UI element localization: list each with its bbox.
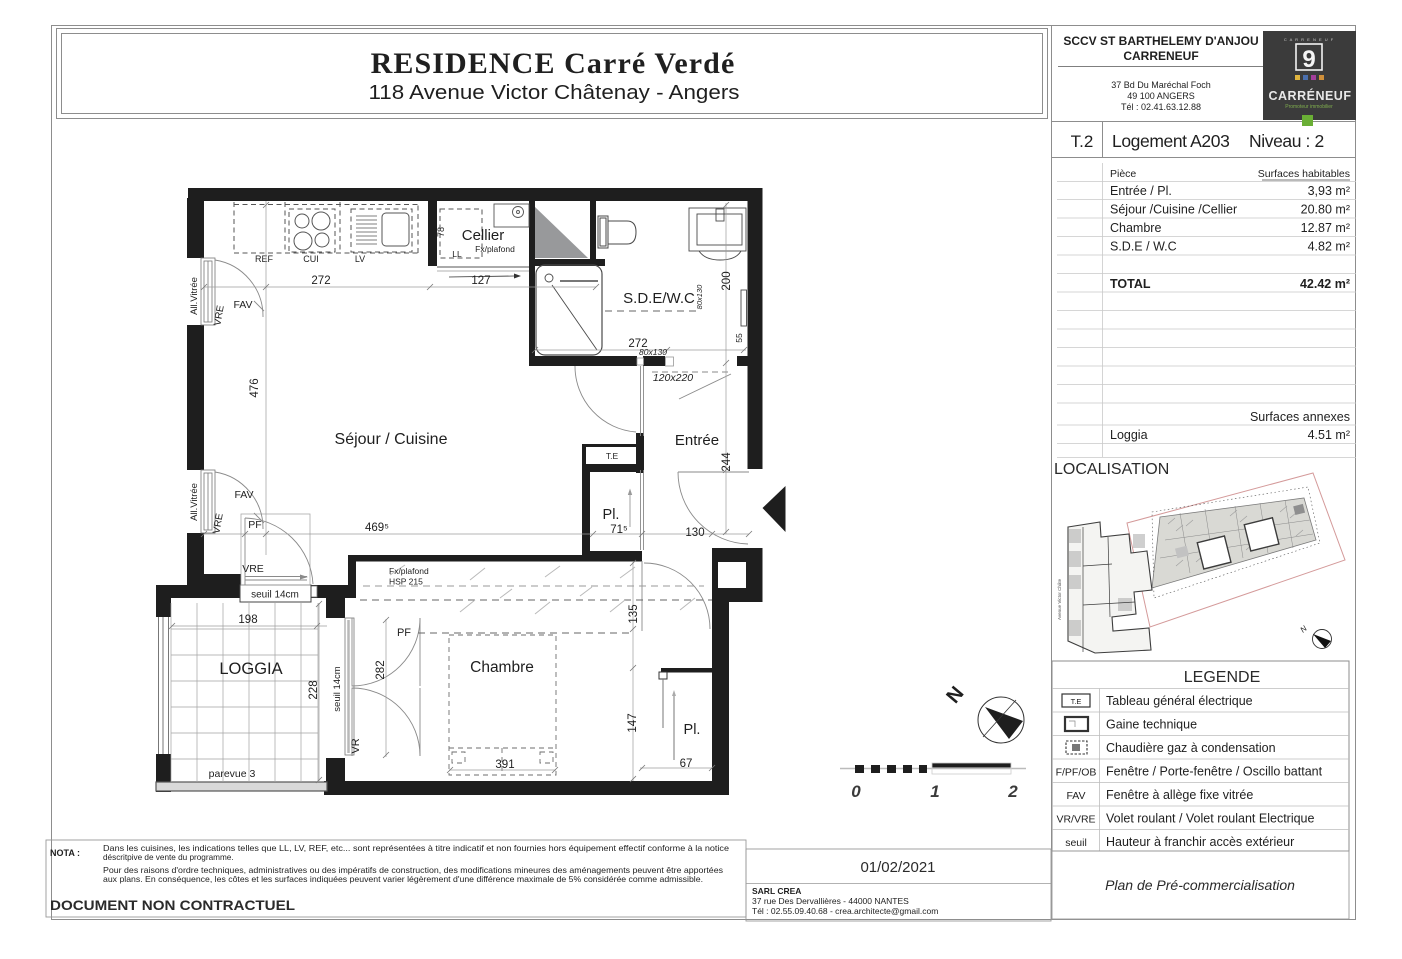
svg-text:Logement A203: Logement A203 (1112, 131, 1229, 151)
svg-text:Fx/plafond: Fx/plafond (475, 244, 515, 254)
svg-text:Chaudière gaz à condensation: Chaudière gaz à condensation (1106, 741, 1276, 755)
svg-text:F/PF/OB: F/PF/OB (1056, 767, 1097, 779)
svg-text:1: 1 (930, 782, 939, 801)
svg-text:seuil: seuil (1065, 837, 1087, 849)
svg-text:LOCALISATION: LOCALISATION (1054, 461, 1169, 478)
svg-text:78: 78 (436, 227, 446, 237)
svg-text:REF: REF (255, 254, 274, 264)
svg-text:SARL CREA: SARL CREA (752, 886, 801, 896)
svg-text:Gaine technique: Gaine technique (1106, 718, 1197, 732)
svg-text:Pièce: Pièce (1110, 168, 1136, 180)
svg-text:aux plans. En conséquence, les: aux plans. En conséquence, les côtes et … (103, 875, 703, 884)
svg-text:seuil 14cm: seuil 14cm (332, 666, 343, 711)
svg-text:VRE: VRE (242, 563, 264, 575)
svg-text:0: 0 (851, 782, 861, 801)
svg-text:49 100 ANGERS: 49 100 ANGERS (1127, 91, 1195, 101)
svg-text:S.D.E/W.C: S.D.E/W.C (623, 290, 695, 307)
svg-text:01/02/2021: 01/02/2021 (860, 859, 935, 876)
svg-text:469⁵: 469⁵ (365, 522, 389, 534)
svg-text:Entrée: Entrée (675, 432, 719, 449)
svg-text:Niveau : 2: Niveau : 2 (1249, 131, 1324, 151)
svg-text:HSP 215: HSP 215 (389, 577, 423, 587)
svg-text:127: 127 (471, 275, 490, 287)
svg-text:Pl.: Pl. (603, 507, 620, 523)
svg-text:244: 244 (721, 452, 733, 472)
svg-text:T.E: T.E (606, 451, 619, 461)
svg-text:RESIDENCE Carré Verdé: RESIDENCE Carré Verdé (371, 47, 736, 80)
svg-text:272: 272 (311, 275, 330, 287)
svg-text:476: 476 (249, 378, 261, 397)
svg-text:parevue 3: parevue 3 (209, 768, 256, 780)
svg-text:DOCUMENT NON CONTRACTUEL: DOCUMENT NON CONTRACTUEL (50, 897, 295, 913)
svg-text:118 Avenue Victor Châtenay - A: 118 Avenue Victor Châtenay - Angers (369, 82, 740, 104)
svg-text:80x130: 80x130 (695, 284, 704, 309)
svg-text:CARRENEUF: CARRENEUF (1123, 49, 1198, 63)
svg-text:Pl.: Pl. (684, 722, 701, 738)
svg-text:LEGENDE: LEGENDE (1184, 669, 1260, 686)
svg-text:LV: LV (355, 254, 365, 264)
svg-text:71⁵: 71⁵ (610, 524, 628, 536)
svg-text:SCCV ST BARTHELEMY D'ANJOU: SCCV ST BARTHELEMY D'ANJOU (1063, 34, 1258, 48)
svg-text:C A R R E N E U F: C A R R E N E U F (1284, 37, 1334, 42)
svg-text:Chambre: Chambre (470, 659, 534, 676)
svg-text:391: 391 (495, 759, 514, 771)
svg-text:282: 282 (375, 660, 387, 679)
svg-text:Fenêtre / Porte-fenêtre / Osci: Fenêtre / Porte-fenêtre / Oscillo battan… (1106, 765, 1323, 779)
svg-text:198: 198 (238, 614, 257, 626)
svg-text:Tél : 02.55.09.40.68 - crea.ar: Tél : 02.55.09.40.68 - crea.architecte@g… (752, 906, 938, 916)
svg-text:Tél : 02.41.63.12.88: Tél : 02.41.63.12.88 (1121, 102, 1201, 112)
svg-text:Surfaces annexes: Surfaces annexes (1250, 410, 1350, 424)
svg-text:55: 55 (734, 333, 744, 343)
svg-text:Dans les cuisines, les indicat: Dans les cuisines, les indications telle… (103, 844, 729, 853)
svg-text:130: 130 (685, 527, 704, 539)
svg-text:Pour des raisons d'ordre techn: Pour des raisons d'ordre techniques, adm… (103, 866, 723, 875)
svg-text:120x220: 120x220 (653, 372, 693, 384)
svg-text:Tableau général électrique: Tableau général électrique (1106, 694, 1253, 708)
svg-text:PF: PF (248, 519, 261, 531)
svg-text:Séjour /Cuisine /Cellier: Séjour /Cuisine /Cellier (1110, 203, 1237, 217)
svg-text:All.Vitrée: All.Vitrée (189, 483, 200, 521)
svg-text:Hauteur à franchir accès extér: Hauteur à franchir accès extérieur (1106, 835, 1294, 849)
svg-text:T.E: T.E (1071, 697, 1082, 706)
svg-text:Cellier: Cellier (462, 227, 505, 244)
svg-text:LL: LL (452, 249, 462, 259)
svg-text:80x130: 80x130 (639, 347, 667, 357)
svg-text:42.42 m²: 42.42 m² (1300, 277, 1350, 291)
svg-text:Fx/plafond: Fx/plafond (389, 566, 429, 576)
svg-text:Séjour / Cuisine: Séjour / Cuisine (335, 431, 448, 448)
svg-text:Volet roulant / Volet roulant: Volet roulant / Volet roulant Electrique (1106, 812, 1315, 826)
svg-text:Entrée / Pl.: Entrée / Pl. (1110, 184, 1172, 198)
svg-text:Fenêtre à allège fixe vitrée: Fenêtre à allège fixe vitrée (1106, 788, 1253, 802)
svg-text:CUI: CUI (303, 254, 319, 264)
svg-text:Avenue Victor Châte: Avenue Victor Châte (1057, 578, 1062, 620)
svg-text:T.2: T.2 (1071, 132, 1094, 151)
svg-text:67: 67 (680, 758, 693, 770)
svg-text:3,93 m²: 3,93 m² (1308, 184, 1350, 198)
svg-text:seuil 14cm: seuil 14cm (251, 590, 299, 601)
svg-text:Loggia: Loggia (1110, 428, 1148, 442)
svg-text:37 rue Des Dervallières - 4400: 37 rue Des Dervallières - 44000 NANTES (752, 896, 909, 906)
svg-text:NOTA :: NOTA : (50, 848, 80, 858)
svg-text:LOGGIA: LOGGIA (219, 660, 282, 678)
svg-text:9: 9 (1302, 46, 1315, 73)
svg-text:FAV: FAV (1066, 790, 1085, 802)
svg-text:37 Bd Du Maréchal Foch: 37 Bd Du Maréchal Foch (1111, 80, 1211, 90)
svg-text:Plan de Pré-commercialisation: Plan de Pré-commercialisation (1105, 877, 1295, 893)
svg-text:PF: PF (397, 627, 411, 639)
svg-text:All.Vitrée: All.Vitrée (189, 277, 200, 315)
svg-text:20.80 m²: 20.80 m² (1301, 203, 1350, 217)
svg-text:2: 2 (1007, 782, 1018, 801)
svg-text:FAV: FAV (234, 489, 253, 501)
svg-text:VR: VR (350, 738, 362, 753)
svg-text:Promoteur immobilier: Promoteur immobilier (1285, 104, 1333, 110)
svg-text:228: 228 (308, 680, 320, 699)
svg-text:S.D.E / W.C: S.D.E / W.C (1110, 240, 1177, 254)
svg-text:Surfaces habitables: Surfaces habitables (1258, 168, 1350, 180)
svg-text:TOTAL: TOTAL (1110, 277, 1151, 291)
svg-text:135: 135 (628, 604, 640, 623)
svg-text:VR/VRE: VR/VRE (1056, 814, 1095, 826)
svg-text:200: 200 (721, 271, 733, 290)
svg-text:FAV: FAV (233, 299, 252, 311)
svg-text:147: 147 (627, 713, 639, 732)
svg-text:déscritpive de vente du progra: déscritpive de vente du programme. (103, 853, 234, 862)
svg-text:4.51 m²: 4.51 m² (1308, 428, 1350, 442)
svg-text:12.87 m²: 12.87 m² (1301, 221, 1350, 235)
svg-text:CARRÉNEUF: CARRÉNEUF (1269, 88, 1352, 103)
svg-text:4.82 m²: 4.82 m² (1308, 240, 1350, 254)
svg-text:Chambre: Chambre (1110, 221, 1161, 235)
